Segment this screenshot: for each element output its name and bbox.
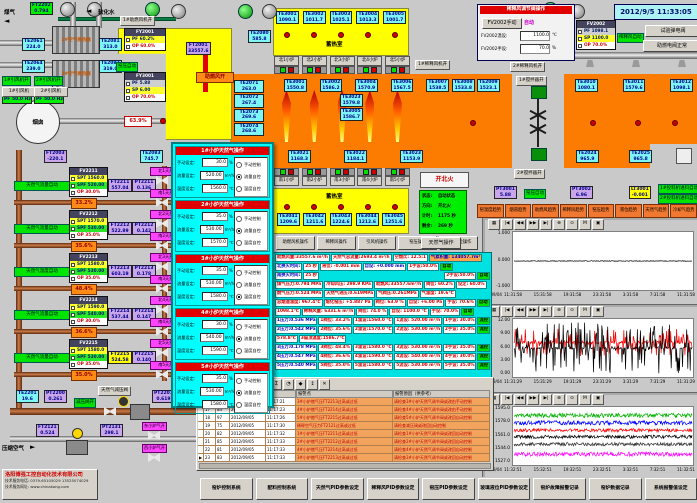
manual-unit: % <box>229 160 233 165</box>
gas-flow-controller[interactable]: FV2212 SPT 1570.0 SPF 530.00 OP 35.0% <box>69 210 108 240</box>
trend-toolbar-icon[interactable]: ▣ <box>592 306 604 317</box>
trend-button[interactable]: 冷却气趋势 <box>670 204 697 218</box>
gas-control-lines: 天然气流量自动 FV2211 SPT 1560.0 SPF 520.00 OP … <box>14 166 176 381</box>
valve-position-value: 48.4% <box>71 284 97 295</box>
status-row: 计时:1175 秒 <box>422 212 464 222</box>
trend-toolbar-icon[interactable]: ▶▶ <box>527 219 539 230</box>
data-cell: 1阀位: 33.2% <box>318 317 352 325</box>
indicator-dot <box>635 120 641 126</box>
alarm-point: 4#小炉燃气压FT2214过高或过低 <box>296 406 393 414</box>
hand-unit: % <box>552 46 556 51</box>
flame-icon <box>310 90 319 142</box>
radio-flow-auto[interactable]: 流量自控 <box>236 171 266 183</box>
gas-auto-mode-label: 天然气温度自动 <box>14 267 70 277</box>
data-cell: 流控 <box>477 362 490 370</box>
flow-set-label: 流量设定: <box>177 227 200 233</box>
data-cell: 阀位: 63.9 % <box>374 299 406 307</box>
y-tick-label: 6.00 <box>500 345 510 350</box>
north-burner-row: 北1小炉 北2小炉 北3小炉 北4小炉 北5小炉 <box>274 56 410 74</box>
flow-set-input[interactable]: 530.00 <box>200 279 224 288</box>
burner-label: 北4小炉 <box>357 56 382 66</box>
alarm-seq: 18 <box>204 414 216 422</box>
trend-toolbar-icon[interactable]: ▦ <box>488 219 500 230</box>
trend-plot[interactable] <box>512 406 694 466</box>
radio-manual-control[interactable]: 手动控制 <box>236 159 266 171</box>
te-indicator: TE30221184.1 <box>344 150 367 163</box>
valve-icon[interactable] <box>148 453 160 462</box>
te-indicator: TE30231579.8 <box>340 94 363 107</box>
stirrer-motor-icon <box>531 148 547 161</box>
control-mode-group: 手动控制 流量自控 温度自控 <box>234 157 268 197</box>
trend-toolbar-icon[interactable]: |◀ <box>501 394 513 405</box>
trend-toolbar-icon[interactable]: ⊕ <box>553 394 565 405</box>
manual-set-input[interactable]: 35.0 <box>202 374 228 383</box>
gas-flow-controller[interactable]: FV2211 SPT 1560.0 SPF 520.00 OP 30.0% <box>69 167 108 197</box>
alarm-reason: 请检查减压阀或改回自动控制 <box>393 422 490 430</box>
gas-flow-controller[interactable]: FV2214 SPT 1590.0 SPF 540.00 OP 30.0% <box>69 296 108 326</box>
y-tick-label: 9.00 <box>500 331 510 336</box>
temp-set-label: 温度设定: <box>177 294 202 300</box>
manual-set-input[interactable]: 30.0 <box>202 158 228 167</box>
operate-button[interactable]: 助燃风机操作 <box>276 236 315 250</box>
flow-set-input[interactable]: 530.00 <box>200 225 224 234</box>
gas-flow-controller[interactable]: FV2215 SPT 1580.0 SPF 530.00 OP 35.0% <box>69 339 108 369</box>
burner-label: 北5小炉 <box>385 56 410 66</box>
indicator-dot <box>160 118 166 124</box>
flame-icon <box>282 90 291 142</box>
temp-set-label: 温度设定: <box>177 348 202 354</box>
panel-title: 稀释风调节阀操作 <box>480 6 572 14</box>
burner-indicators <box>357 66 382 74</box>
burner-gas-control-section: 3#小炉天然气操作 手动设定: 35.0 % 流量设定: 530.00 m³/h… <box>175 254 270 306</box>
burner-indicators <box>302 66 327 74</box>
data-cell: 流控 <box>477 353 490 361</box>
bottom-button[interactable]: 玻璃液位PID参数设定 <box>478 478 531 500</box>
indicator-dot <box>672 120 678 126</box>
radio-flow-auto[interactable]: 流量自控 <box>236 387 266 399</box>
temp-set-input[interactable]: 1590.0 <box>202 346 228 355</box>
controller-spt: SPT 1590.0 <box>70 304 107 311</box>
section-title: 5#小炉天然气操作 <box>176 363 269 371</box>
x-tick-label: 11:32:51 <box>677 467 695 472</box>
pipe <box>56 118 176 124</box>
data-cell: 5压力:0.540 MPa <box>275 362 317 370</box>
alarm-point: 3#小炉燃气压FT2213过高或过低 <box>296 454 393 462</box>
alarm-date: 2012/09/05 <box>230 454 266 462</box>
burner-south[interactable]: 南5小炉 <box>385 168 410 186</box>
radio-icon <box>236 402 242 408</box>
data-cell: 25 秒 <box>303 263 319 271</box>
indicator-dot <box>470 120 476 126</box>
regen-north-te-row: TE30011090.1 TE30021011.7 TE30031025.1 T… <box>276 11 406 24</box>
burner-north[interactable]: 北5小炉 <box>385 56 410 74</box>
combustion-air-open-label: 助燃风开 <box>196 72 234 83</box>
trend-button[interactable]: 天然气趋势 <box>643 204 670 218</box>
controller-tag: FY2001 <box>125 29 165 36</box>
air-flow-controller[interactable]: FY2001 PF 60.2% OP 60.0% <box>124 28 166 51</box>
flame-icon <box>365 90 374 142</box>
burner-gas-control-section: 1#小炉天然气操作 手动设定: 30.0 % 流量设定: 520.00 m³/h… <box>175 146 270 198</box>
controller-spt: SPT 1580.0 <box>70 261 107 268</box>
radio-manual-control[interactable]: 手动控制 <box>236 375 266 387</box>
stirrer2-status: 2#搅拌器开 <box>514 169 545 179</box>
temp-unit: ℃ <box>229 186 234 191</box>
gas-burner-line: 天然气温度自动 FV2213 SPT 1580.0 SPF 530.00 OP … <box>14 252 176 295</box>
te-indicator: TE220119.6 <box>16 390 39 403</box>
controller-sp: SP 1100.0 <box>577 35 615 42</box>
trend-toolbar-icon[interactable]: M <box>579 394 591 405</box>
bottom-button[interactable]: 窑炉控制系统 <box>200 478 253 500</box>
data-cell: 空燃比: 12.5:1 <box>393 254 428 262</box>
controller-op: OP 30.0% <box>70 318 107 325</box>
te-indicator: TE2083745.7 <box>140 150 163 163</box>
burner-label: 南4小炉 <box>357 176 382 186</box>
bottom-button[interactable]: 天然气PID参数设定 <box>311 478 364 500</box>
y-tick-label: 0.000 <box>498 258 510 263</box>
trend-toolbar-icon[interactable]: ⊙ <box>566 306 578 317</box>
alarm-toolbar-icon[interactable]: ↕ <box>307 379 318 390</box>
radio-flow-auto[interactable]: 流量自控 <box>236 333 266 345</box>
furnace-crown-te: TE30011550.8 TE30021586.2 TE30041570.9 T… <box>284 79 449 92</box>
column-header-point[interactable]: 报警点 <box>296 390 393 398</box>
flow-indicator: FT2213603.19 <box>108 265 132 278</box>
fan-icon <box>262 4 277 19</box>
data-cell: 稀释风量: 6331.6 m³/h <box>302 308 355 316</box>
burner-south[interactable]: 南1小炉 <box>274 168 299 186</box>
controller-spt: SPT 1570.0 <box>70 218 107 225</box>
x-tick-label: 19:32:51 <box>563 467 581 472</box>
te-indicator: TE20091523.1 <box>477 79 500 92</box>
alarm-row[interactable]: 21 85 2012/09/05 11:17:33 2#小炉燃气压FT2212过… <box>197 438 493 446</box>
solenoid-normal-button[interactable]: 助燃电阀正常 <box>643 40 697 52</box>
radio-flow-auto[interactable]: 流量自控 <box>236 279 266 291</box>
trend-plot[interactable] <box>512 231 694 291</box>
burner-label: 北2小炉 <box>302 56 327 66</box>
data-cell: 1手设: 30.0% <box>443 317 477 325</box>
y-tick-label: 1595.0 <box>495 406 510 411</box>
x-tick-label: 15:31:58 <box>534 292 552 297</box>
alarm-toolbar-icon[interactable]: ◔ <box>283 379 294 390</box>
temp-set-input[interactable]: 1580.0 <box>202 292 228 301</box>
manual-unit: % <box>229 376 233 381</box>
gas-burner-line: 天然气流量自动 FV2215 SPT 1580.0 SPF 530.00 OP … <box>14 338 176 381</box>
te-indicator: TE2081313.0 <box>99 38 122 51</box>
trend-button[interactable]: 烟道趋势 <box>505 204 532 218</box>
te-indicator: TE30021586.2 <box>320 79 343 92</box>
radio-manual-control[interactable]: 手动控制 <box>236 213 266 225</box>
alarm-code: 97 <box>216 414 230 422</box>
te-indicator: TE30041013.3 <box>356 11 379 24</box>
gauge-icon <box>72 428 83 439</box>
data-cell: 设定: 60.0% <box>456 281 487 289</box>
manual-set-label: 手动设定: <box>177 376 202 382</box>
operate-button[interactable]: 稀释风操作 <box>317 236 356 250</box>
dilution-fan1-status: 1#稀释风机开 <box>415 60 450 70</box>
burner-north[interactable]: 北2小炉 <box>302 56 327 74</box>
controller-tag: FV2213 <box>70 254 107 261</box>
data-cell: 自动 <box>477 272 490 280</box>
te-indicator: TE30051586.7 <box>340 108 363 121</box>
alarm-row[interactable]: ▶ 23 83 2012/09/05 11:17:33 3#小炉燃气压FT221… <box>197 454 493 462</box>
trend-toolbar-icon[interactable]: ▶▶ <box>527 394 539 405</box>
manual-set-input[interactable]: 35.0 <box>202 266 228 275</box>
data-cell: 3流设: 530.00 m³/h <box>394 344 442 352</box>
regen-south-te-row: TE30411209.6 TE30421211.6 TE30431224.6 T… <box>277 213 405 226</box>
fan-icon <box>171 4 186 19</box>
valve-position-value: 35.0% <box>71 370 97 381</box>
radio-temp-auto[interactable]: 温度自控 <box>236 345 266 357</box>
data-cell: 阀位: 60.2% <box>424 281 455 289</box>
pressure-indicator: PT30026.96 <box>570 186 593 199</box>
dilution-auto-label: 稀释风自动 <box>617 33 644 43</box>
bottom-button[interactable]: 窑炉故障报警记录 <box>533 478 586 500</box>
trend-toolbar-icon[interactable]: M <box>579 306 591 317</box>
data-cell: 4温设:1590.0 ℃ <box>353 353 393 361</box>
manual-set-input[interactable]: 30.0 <box>202 320 228 329</box>
data-cell: 2流设: 530.00 m³/h <box>394 326 442 334</box>
alarm-reason: 请检查5#小炉天然气调节阀或改回自动控制 <box>393 414 490 422</box>
control-mode-group: 手动控制 流量自控 温度自控 <box>234 373 268 413</box>
bottom-button[interactable]: 窑压PID参数设定 <box>422 478 475 500</box>
trend-plot[interactable] <box>512 318 694 378</box>
x-tick-label: 15:31:29 <box>534 379 552 384</box>
burner-north[interactable]: 北4小炉 <box>357 56 382 74</box>
datetime-display: 2012/9/5 11:33:05 <box>614 4 697 20</box>
radio-temp-auto[interactable]: 温度自控 <box>236 183 266 195</box>
burner-south[interactable]: 南2小炉 <box>302 168 327 186</box>
pressure-indicator: PT22000.261 <box>44 390 67 403</box>
te-indicator: TE30231153.9 <box>400 150 423 163</box>
alarm-date: 2012/09/05 <box>230 446 266 454</box>
x-tick-label: 23:32:51 <box>593 467 611 472</box>
flow-set-input[interactable]: 530.00 <box>200 387 224 396</box>
burner-north[interactable]: 北1小炉 <box>274 56 299 74</box>
trend-toolbar-icon[interactable]: ▶| <box>540 394 552 405</box>
y-tick-label: 1.000 <box>498 231 510 236</box>
trend-toolbar-icon[interactable]: ◀◀ <box>514 219 526 230</box>
trend-toolbar-icon[interactable]: |◀ <box>501 219 513 230</box>
trend-button[interactable]: 窑压趋势 <box>588 204 615 218</box>
temp-set-label: FV2002温设: <box>481 33 507 39</box>
controller-op: OP 70.0% <box>577 42 615 49</box>
trend-toolbar-icon[interactable]: ▣ <box>592 394 604 405</box>
trend-toolbar-icon[interactable]: ▶| <box>540 219 552 230</box>
bottom-button[interactable]: 稀释风PID参数设定 <box>367 478 420 500</box>
gas-burner-line: 天然气流量自动 FV2214 SPT 1590.0 SPF 540.00 OP … <box>14 295 176 338</box>
trend-chart-temperature: ▦|◀◀◀▶▶▶|⊕⊙M▣ 1595.01578.01561.01544.015… <box>484 394 697 480</box>
burner-label: 南1小炉 <box>274 176 299 186</box>
manual-set-input[interactable]: 35.0 <box>202 212 228 221</box>
x-tick-label: 23:31:58 <box>593 292 611 297</box>
alarm-reason: 请检查2#小炉天然气调节阀或改回自动控制 <box>393 438 490 446</box>
trend-toolbar-icon[interactable]: ⊕ <box>553 219 565 230</box>
te-indicator: TE30121098.1 <box>670 79 693 92</box>
manual-unit: % <box>229 268 233 273</box>
valve-position-value: 36.6% <box>71 327 97 338</box>
test-solenoid-button[interactable]: 试验弹电阀 <box>645 25 697 37</box>
radio-temp-auto[interactable]: 温度自控 <box>236 399 266 411</box>
radio-temp-auto[interactable]: 温度自控 <box>236 291 266 303</box>
trend-toolbar-icon[interactable]: ▶| <box>540 306 552 317</box>
data-cell: 气阀压:0.261MPa <box>376 290 418 298</box>
flow-set-input[interactable]: 540.00 <box>200 333 224 342</box>
te-indicator: TE30011090.1 <box>276 11 299 24</box>
operate-button[interactable]: 引风机操作 <box>358 236 397 250</box>
controller-tag: FY3001 <box>125 73 165 80</box>
controller-op: OP 30.0% <box>70 189 107 196</box>
temp-set-input[interactable]: 1570.0 <box>202 238 228 247</box>
regenerator-label: 蓄热室 <box>326 192 343 200</box>
status-row: 方向:开北火 <box>422 202 464 212</box>
alarm-reason: 请检查4#小炉天然气调节阀或改回自动控制 <box>393 446 490 454</box>
section-title: 4#小炉天然气操作 <box>176 309 269 317</box>
trend-toolbar-icon[interactable]: |◀ <box>501 306 513 317</box>
trend-toolbar-icon[interactable]: ⊙ <box>566 394 578 405</box>
bottom-button[interactable]: 窑炉数据记录 <box>589 478 642 500</box>
alarm-code: 83 <box>216 454 230 462</box>
alarm-point: 稀释空气压力FT2121过高或过低 <box>296 422 393 430</box>
burner-south[interactable]: 南3小炉 <box>330 168 355 186</box>
air-valve-east-label: 东小炉气开 <box>142 422 167 431</box>
data-cell: 助燃风:33557.6m³/h <box>374 281 423 289</box>
temp-set-input[interactable]: 1100.0 <box>520 31 550 41</box>
hand-set-input[interactable]: 70.0 <box>520 44 550 54</box>
te-indicator: TE2064239.0 <box>22 60 45 73</box>
flow-set-input[interactable]: 520.00 <box>200 171 224 180</box>
alarm-row[interactable]: 18 97 2012/09/05 11:17:26 5#小炉燃气压FT2215过… <box>197 414 493 422</box>
data-cell: 自设: 1100.0 ℃ <box>389 308 428 316</box>
data-cell: 天然气进压:0.619MPa <box>324 290 375 298</box>
trend-toolbar-icon[interactable]: ◀◀ <box>514 306 526 317</box>
gauge-icon <box>118 396 129 407</box>
control-mode-group: 手动控制 流量自控 温度自控 <box>234 211 268 251</box>
flow-set-label: 流量设定: <box>177 389 200 395</box>
trend-toolbar-icon[interactable]: ⊕ <box>553 306 565 317</box>
dilution-controller[interactable]: FV2002 PF 1098.1 SP 1100.0 OP 70.0% <box>576 20 616 50</box>
alarm-row[interactable]: 20 82 2012/09/05 11:17:32 1#小炉燃气压FT2211过… <box>197 430 493 438</box>
trend-button[interactable]: 窑温度趋势 <box>477 204 504 218</box>
trend-button[interactable]: 助燃风趋势 <box>532 204 559 218</box>
y-tick-label: 1527.0 <box>495 459 510 464</box>
flow-indicator: FT2212522.89 <box>108 222 132 235</box>
flow-unit: m³/h <box>225 227 234 232</box>
te-indicator: TE30111579.6 <box>623 79 646 92</box>
section-title: 2#小炉天然气操作 <box>176 201 269 209</box>
temp-unit: ℃ <box>229 294 234 299</box>
controller-pv: PF 60.2% <box>125 36 165 43</box>
radio-manual-control[interactable]: 手动控制 <box>236 267 266 279</box>
radio-temp-auto[interactable]: 温度自控 <box>236 237 266 249</box>
fan-icon <box>145 2 160 17</box>
radio-icon <box>236 240 242 246</box>
window-box <box>676 148 692 164</box>
burner-label: 南2小炉 <box>302 176 327 186</box>
radio-icon <box>236 216 242 222</box>
data-cell: 1流设: 520.00 m³/h <box>394 317 442 325</box>
trend-toolbar-icon[interactable]: M <box>579 219 591 230</box>
trend-chart-pressure: ▦|◀◀◀▶▶▶|⊕⊙M▣ 12.009.006.003.000.00 12/0… <box>484 306 697 392</box>
gas-flow-controller[interactable]: FV2213 SPT 1580.0 SPF 530.00 OP 35.0% <box>69 253 108 283</box>
trend-toolbar-icon[interactable]: ◀◀ <box>514 394 526 405</box>
te-indicator: TE30031025.1 <box>330 11 353 24</box>
alarm-row[interactable]: 19 75 2012/09/05 11:17:30 稀释空气压力FT2121过高… <box>197 422 493 430</box>
alarm-point: 2#小炉燃气压FT2212过高或过低 <box>296 438 393 446</box>
gas-operate-button[interactable]: 天然气操作 <box>421 237 461 249</box>
temp-set-input[interactable]: 1560.0 <box>202 184 228 193</box>
vendor-info-box: 洛阳博强工控自动化技术有限公司 技术服务电话: 0379-65105029 13… <box>2 469 98 500</box>
alarm-toolbar-icon[interactable]: ✕ <box>319 379 330 390</box>
data-cell: 5阀位: 35.0% <box>318 362 352 370</box>
reducer-valve-body <box>130 404 150 420</box>
damper-position-value: 63.9% <box>124 116 152 127</box>
pressure-indicator: PT30015.88 <box>494 186 517 199</box>
flow-unit: m³/h <box>225 173 234 178</box>
furnace-right-bottom-te: TE2024965.9 TE2025965.8 <box>576 150 652 163</box>
alarm-scrollbar[interactable] <box>199 463 491 469</box>
x-tick-label: 15:32:51 <box>534 467 552 472</box>
data-cell: 2手设:50.0% <box>444 272 476 280</box>
temp-set-input[interactable]: 1580.0 <box>202 400 228 409</box>
alarm-time: 11:17:33 <box>266 438 296 446</box>
te-indicator: TE30081533.8 <box>452 79 475 92</box>
bottom-button[interactable]: 配料控制系统 <box>256 478 309 500</box>
burner-south[interactable]: 南4小炉 <box>357 168 382 186</box>
data-cell: 熔化窑压: +5.887 Pa <box>324 299 373 307</box>
alarm-toolbar-icon[interactable]: ◆ <box>295 379 306 390</box>
burner-label: 南5小炉 <box>385 176 410 186</box>
gas-auto-mode-label: 天然气流量自动 <box>14 224 70 234</box>
te-indicator: TE30051001.7 <box>383 11 406 24</box>
alarm-reason: 请检查3#小炉天然气调节阀或改由手动控制 <box>393 398 490 406</box>
burner-north[interactable]: 北3小炉 <box>330 56 355 74</box>
arrow-left-icon: ◄ <box>86 8 91 15</box>
manual-set-label: 手动设定: <box>177 214 202 220</box>
data-cell: 手设: 70.6% <box>445 299 476 307</box>
bottom-button[interactable]: 系统报警值设定 <box>645 478 697 500</box>
trend-toolbar-icon[interactable]: ⊙ <box>566 219 578 230</box>
trend-toolbar-icon[interactable]: ▣ <box>592 219 604 230</box>
control-mode-group: 手动控制 流量自控 温度自控 <box>234 319 268 359</box>
controller-tag: FV2002 <box>577 21 615 28</box>
data-cell: 1手设:50.0% <box>407 263 439 271</box>
data-cell: 4阀位: 36.6% <box>318 353 352 361</box>
radio-manual-control[interactable]: 手动控制 <box>236 321 266 333</box>
manual-set-label: 手动设定: <box>177 160 202 166</box>
burner-gas-control-section: 2#小炉天然气操作 手动设定: 35.0 % 流量设定: 530.00 m³/h… <box>175 200 270 252</box>
gas-burner-line: 天然气流量自动 FV2212 SPT 1570.0 SPF 530.00 OP … <box>14 209 176 252</box>
fv2002-auto-tag: 自动 <box>524 19 534 26</box>
alarm-code: 82 <box>216 430 230 438</box>
burner-label: 北3小炉 <box>330 56 355 66</box>
trend-chart-level: ▦|◀◀◀▶▶▶|⊕⊙M▣ 1.0000.000-1.000 12/09/04 … <box>484 219 697 305</box>
alarm-time: 11:17:33 <box>266 454 296 462</box>
data-cell: 2手设: 35.0% <box>443 326 477 334</box>
flow-indicator: FT2214537.44 <box>108 308 132 321</box>
fv2002-manual-button[interactable]: FV2002手动 <box>482 18 522 29</box>
trend-toolbar-icon[interactable]: ▶▶ <box>527 306 539 317</box>
vendor-website[interactable]: 技术服务网址: www.chinakong.com <box>5 484 95 490</box>
gas-reducer-label: 天然气减压阀 <box>98 386 131 396</box>
temp-unit: ℃ <box>229 348 234 353</box>
trend-button[interactable]: 稀释风趋势 <box>560 204 587 218</box>
alarm-row[interactable]: 22 81 2012/09/05 11:17:33 4#小炉燃气压FT2214过… <box>197 446 493 454</box>
radio-flow-auto[interactable]: 流量自控 <box>236 225 266 237</box>
data-cell: 气温度: 19.6℃ <box>420 290 456 298</box>
kiln-pressure-controller[interactable]: FY3001 PF 5.88 SP 6.00 OP 70.0% <box>124 72 166 102</box>
column-header-reason[interactable]: 报警原因（供参考） <box>393 390 490 398</box>
trend-button[interactable]: 液位趋势 <box>615 204 642 218</box>
data-cell: 5流设: 530.00 m³/h <box>394 362 442 370</box>
